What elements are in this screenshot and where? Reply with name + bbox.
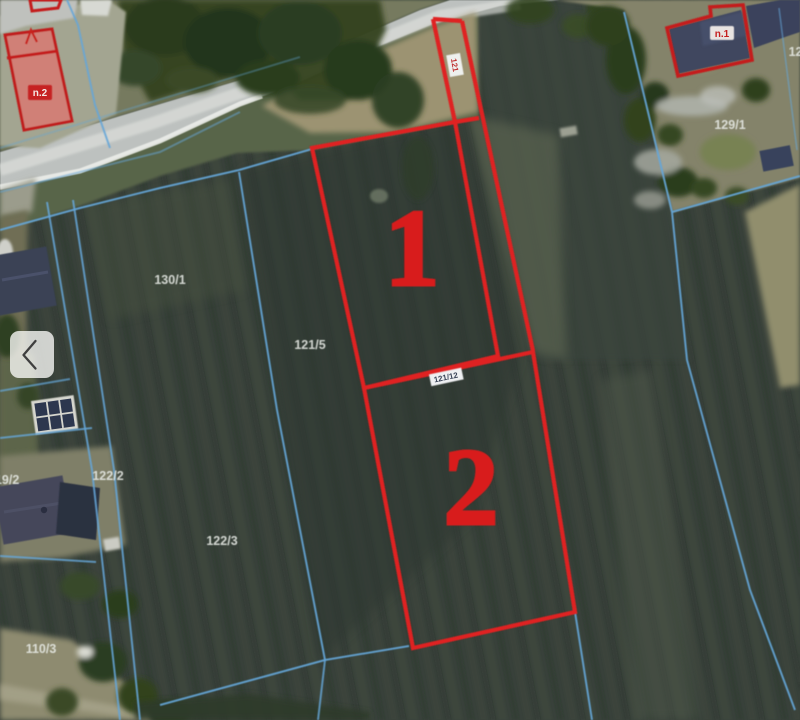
svg-text:1: 1 <box>385 187 440 309</box>
svg-text:128: 128 <box>789 45 800 59</box>
svg-text:n.1: n.1 <box>715 29 730 40</box>
svg-text:129/1: 129/1 <box>714 118 745 132</box>
svg-text:130/1: 130/1 <box>154 273 185 287</box>
svg-text:121/5: 121/5 <box>294 338 325 352</box>
svg-text:119/2: 119/2 <box>0 473 19 487</box>
svg-text:122/2: 122/2 <box>92 469 123 483</box>
svg-text:n.2: n.2 <box>33 88 48 99</box>
svg-text:2: 2 <box>444 426 499 548</box>
svg-text:110/3: 110/3 <box>26 642 57 656</box>
svg-text:122/3: 122/3 <box>206 534 237 548</box>
